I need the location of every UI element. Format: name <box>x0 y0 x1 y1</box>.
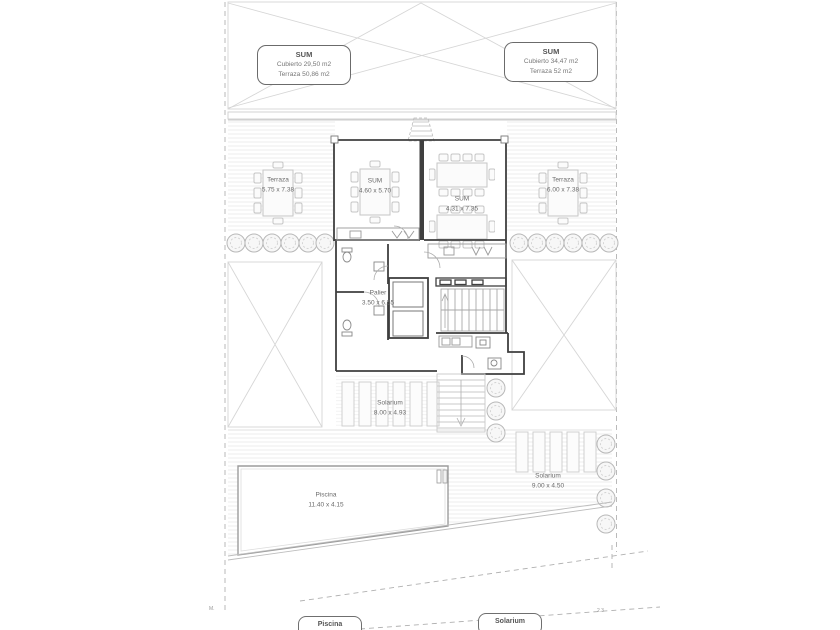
label-piscina: Piscina 11.40 x 4.15 <box>308 491 343 512</box>
label-terraza-left: Terraza 5.75 x 7.38 <box>262 176 294 197</box>
callout-sum-right: SUM Cubierto 34,47 m2 Terraza 52 m2 <box>504 42 598 82</box>
plan-linework <box>0 0 840 630</box>
callout-title: SUM <box>262 49 346 60</box>
entrance-steps <box>408 118 434 141</box>
label-solarium-right: Solarium 9.00 x 4.50 <box>532 472 564 493</box>
trees-mid-column <box>487 379 505 442</box>
callout-cubierto: Cubierto 34,47 m2 <box>509 57 593 67</box>
roof-left-lower <box>228 262 322 427</box>
tag-solarium: Solarium <box>478 613 542 630</box>
roof-right-lower <box>512 260 616 410</box>
solarium-right-loungers <box>516 432 596 472</box>
interior-stairs <box>441 289 504 331</box>
trees-right-row <box>510 234 618 252</box>
callout-terraza: Terraza 50,86 m2 <box>262 70 346 80</box>
elevator <box>389 278 428 338</box>
trees-left-row <box>227 234 334 252</box>
callout-sum-left: SUM Cubierto 29,50 m2 Terraza 50,86 m2 <box>257 45 351 85</box>
kitchen-counter <box>428 244 506 347</box>
label-palier: Palier 3.50 x 6.55 <box>362 289 394 310</box>
label-sum-right: SUM 4.31 x 7.35 <box>446 195 478 216</box>
label-terraza-right: Terraza 6.00 x 7.38 <box>547 176 579 197</box>
floor-plan-canvas: SUM Cubierto 29,50 m2 Terraza 50,86 m2 S… <box>0 0 840 630</box>
callout-title: SUM <box>509 46 593 57</box>
label-sum-left: SUM 4.60 x 5.70 <box>359 177 391 198</box>
label-solarium-center: Solarium 8.00 x 4.93 <box>374 399 406 420</box>
tag-piscina: Piscina <box>298 616 362 630</box>
survey-mark-right: 2.3 <box>597 608 604 614</box>
callout-terraza: Terraza 52 m2 <box>509 67 593 77</box>
stair-handrail-band <box>436 278 506 286</box>
survey-mark-left: M. <box>209 606 215 612</box>
exterior-stairs <box>437 374 485 432</box>
callout-cubierto: Cubierto 29,50 m2 <box>262 60 346 70</box>
